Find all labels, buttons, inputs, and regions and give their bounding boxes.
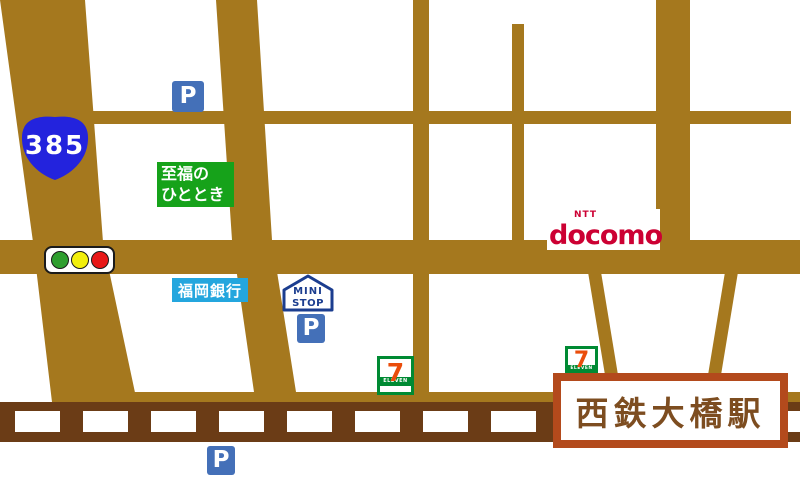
docomo-wordmark: docomo (549, 222, 662, 249)
shifuku-line2: ひととき (161, 184, 234, 205)
station-path-right (708, 272, 738, 375)
route-385-shield: 385 (17, 110, 93, 182)
road-diagonal-left (0, 0, 137, 402)
parking-sign-bottom: P (207, 446, 235, 475)
road-vertical-2 (413, 0, 429, 402)
traffic-light-icon (44, 246, 115, 274)
bank-label: 福岡銀行 (178, 280, 242, 301)
docomo-logo: NTT docomo (547, 209, 660, 250)
traffic-light-green (51, 251, 69, 269)
access-map: 385 P P P 至福の ひととき 福岡銀行 MINI STOP NTT do… (0, 0, 800, 484)
traffic-light-red (91, 251, 109, 269)
parking-sign-top: P (172, 81, 204, 112)
docomo-ntt-label: NTT (574, 210, 597, 220)
road-vertical-3 (512, 24, 524, 250)
parking-sign-middle: P (297, 314, 325, 343)
ministop-line2: STOP (292, 298, 324, 309)
station-name: 西鉄大橋駅 (576, 387, 766, 435)
fukuoka-bank-sign: 福岡銀行 (172, 278, 248, 302)
traffic-light-yellow (71, 251, 89, 269)
seven-eleven-logo-center: ELEVEN 7 (377, 356, 414, 395)
shifuku-no-hitotoki-sign: 至福の ひととき (157, 162, 234, 207)
parking-label: P (180, 85, 197, 108)
route-number: 385 (25, 131, 85, 161)
road-vertical-4 (656, 0, 690, 248)
seven-numeral: 7 (568, 350, 595, 372)
seven-numeral: 7 (380, 360, 411, 385)
ministop-logo: MINI STOP (282, 274, 334, 312)
ministop-line1: MINI (293, 286, 323, 297)
parking-label: P (303, 317, 320, 340)
road-main-horizontal (0, 240, 800, 274)
shifuku-line1: 至福の (161, 163, 234, 184)
station-sign: 西鉄大橋駅 (553, 373, 788, 448)
parking-label: P (213, 449, 230, 472)
